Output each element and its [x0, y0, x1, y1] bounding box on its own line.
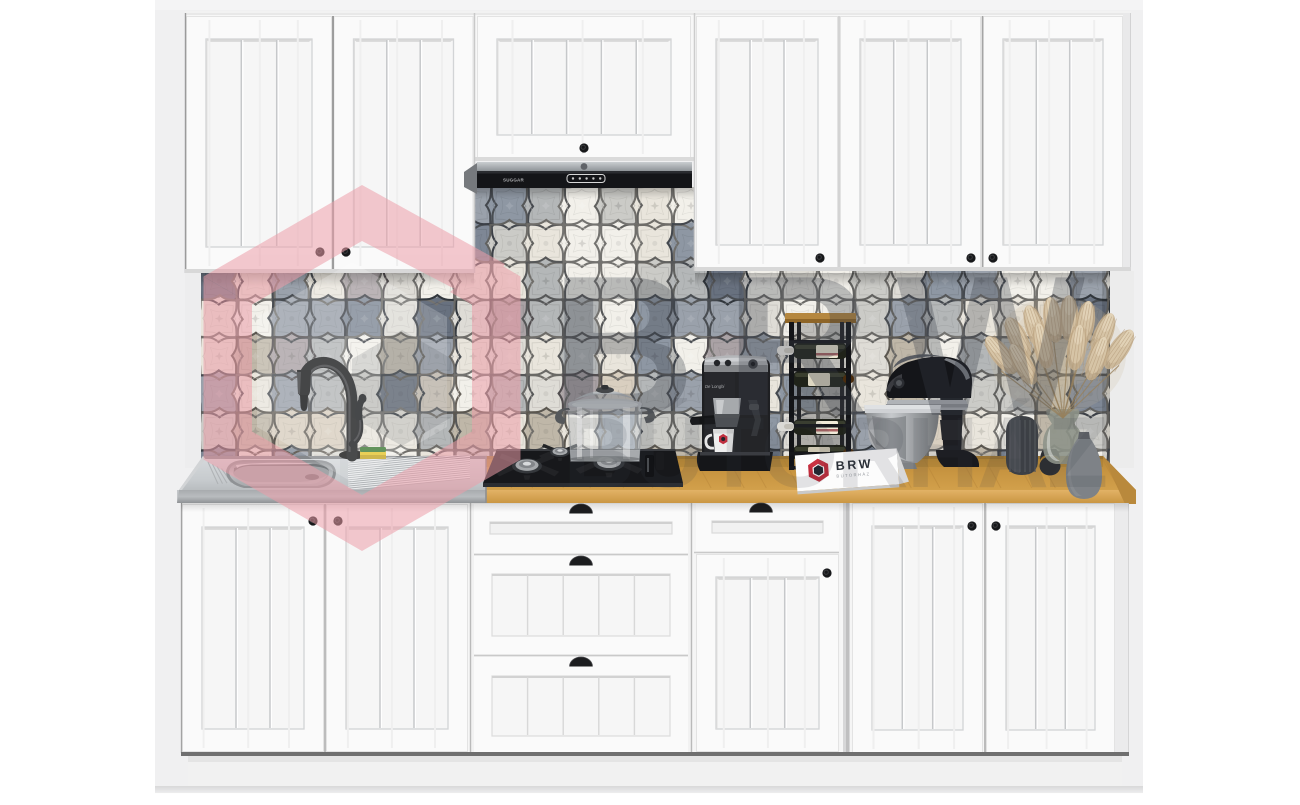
- svg-text:SUGGAR: SUGGAR: [503, 178, 525, 183]
- svg-text:BÚTORHÁZ: BÚTORHÁZ: [563, 397, 1106, 509]
